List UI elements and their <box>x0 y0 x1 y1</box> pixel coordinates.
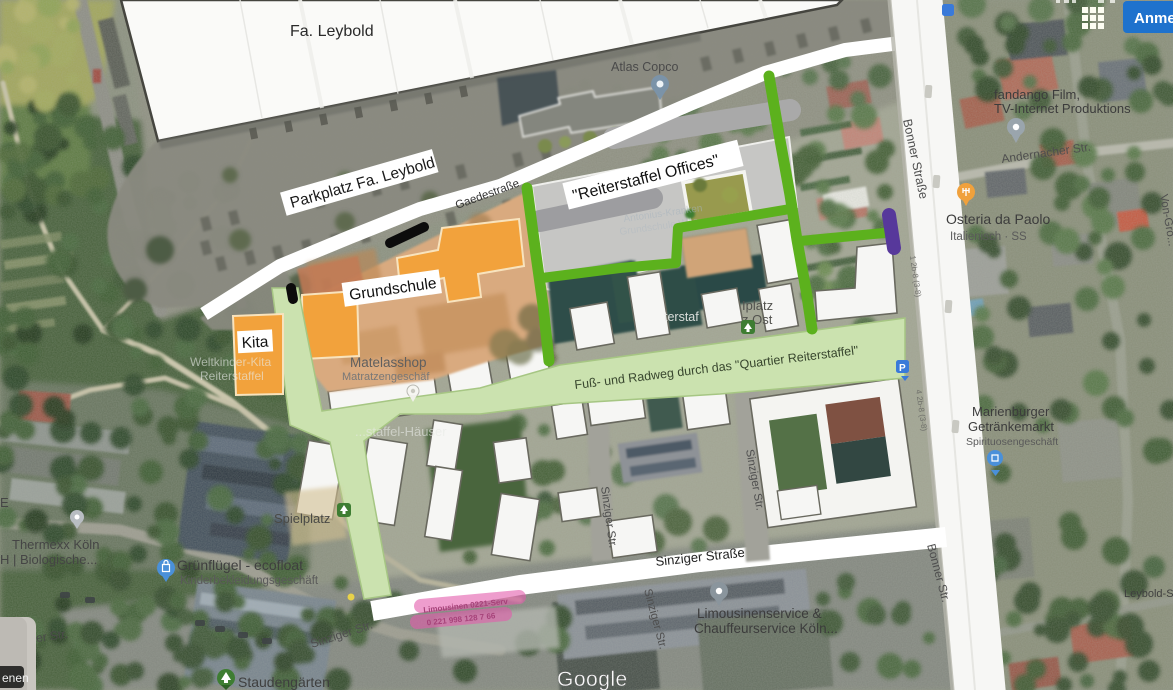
svg-text:Kinderbekleidungsgeschäft: Kinderbekleidungsgeschäft <box>180 575 319 587</box>
svg-text:P: P <box>899 363 906 374</box>
svg-text:Matratzengeschäf: Matratzengeschäf <box>342 371 430 383</box>
svg-text:Google: Google <box>557 668 628 690</box>
svg-text:Italienisch · SS: Italienisch · SS <box>950 231 1027 243</box>
svg-text:Anmel: Anmel <box>1134 10 1173 27</box>
svg-text:Weltkinder-Kita: Weltkinder-Kita <box>190 355 271 369</box>
svg-text:Grünflügel - ecofloat: Grünflügel - ecofloat <box>177 557 303 573</box>
svg-text:Iplatz: Iplatz <box>742 298 773 313</box>
svg-text:enen: enen <box>2 671 29 685</box>
svg-text:Osteria da Paolo: Osteria da Paolo <box>946 211 1050 227</box>
svg-text:Chauffeurservice Köln...: Chauffeurservice Köln... <box>694 621 838 636</box>
svg-text:Atlas Copco: Atlas Copco <box>611 60 678 74</box>
svg-text:E: E <box>0 495 9 510</box>
svg-text:Spielplatz: Spielplatz <box>274 511 330 526</box>
svg-text:Reiterstaffel: Reiterstaffel <box>200 369 264 383</box>
svg-text:Leybold-S...: Leybold-S... <box>1124 588 1173 600</box>
svg-text:Marienburger: Marienburger <box>972 404 1050 419</box>
svg-text:Spirituosengeschäft: Spirituosengeschäft <box>966 436 1058 448</box>
svg-text:H | Biologische...: H | Biologische... <box>0 552 97 567</box>
svg-text:terstaf: terstaf <box>664 310 699 324</box>
svg-text:Fa. Leybold: Fa. Leybold <box>290 23 374 40</box>
svg-text:fandango Film,: fandango Film, <box>994 87 1080 102</box>
svg-text:Kita: Kita <box>241 334 269 352</box>
svg-text:Thermexx Köln: Thermexx Köln <box>12 537 99 552</box>
svg-text:Limousinenservice &: Limousinenservice & <box>697 606 822 621</box>
svg-text:Staudengärten: Staudengärten <box>238 674 330 690</box>
svg-text:...staffel-Häuser: ...staffel-Häuser <box>355 424 447 439</box>
svg-text:Matelasshop: Matelasshop <box>350 355 427 370</box>
svg-text:TV-Internet Produktions: TV-Internet Produktions <box>994 101 1131 116</box>
svg-text:Getränkemarkt: Getränkemarkt <box>968 419 1054 434</box>
